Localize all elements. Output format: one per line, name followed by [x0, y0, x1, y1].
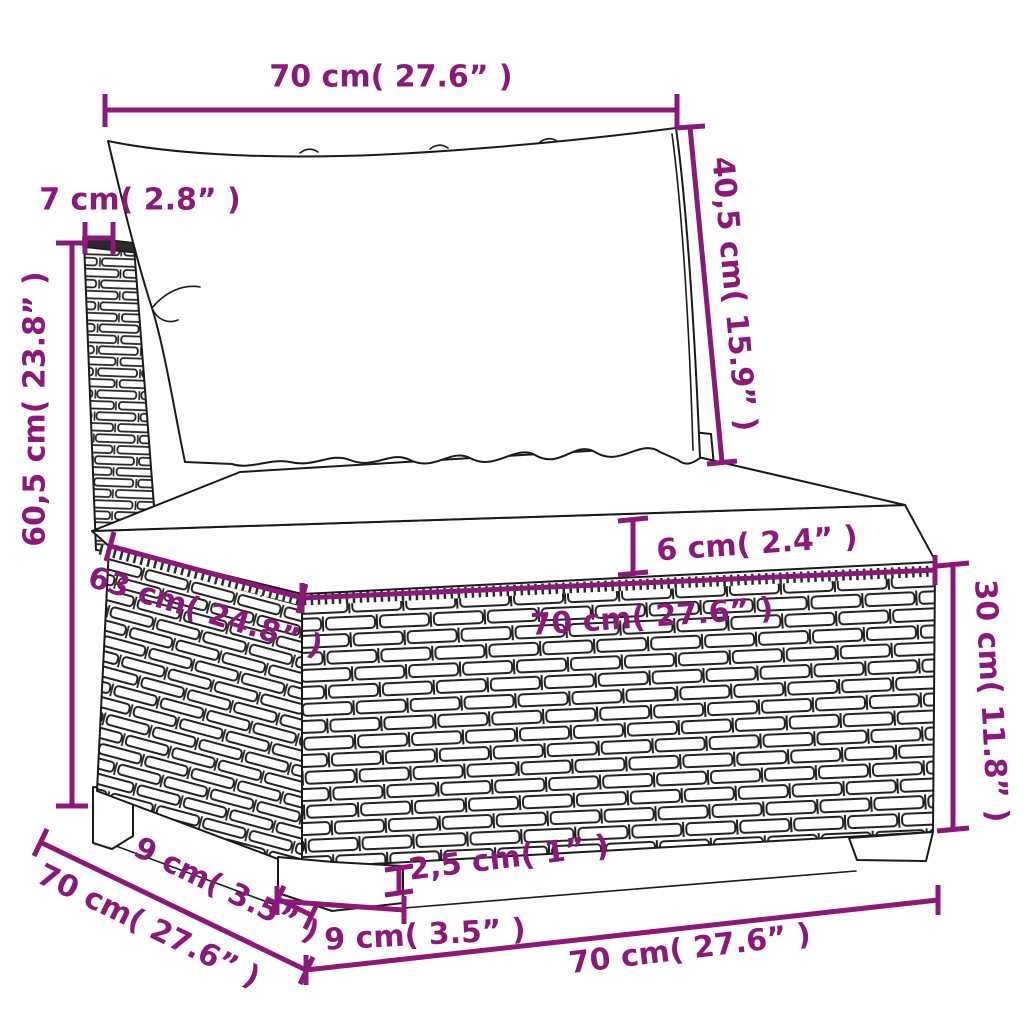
dim-total-height: 60,5 cm( 23.8” ) — [18, 243, 89, 806]
dim-label: 70 cm( 27.6” ) — [269, 60, 512, 95]
diagram-canvas: 70 cm( 27.6” ) 7 cm( 2.8” ) 40,5 cm( 15.… — [0, 0, 1024, 1024]
product-dimension-diagram: 70 cm( 27.6” ) 7 cm( 2.8” ) 40,5 cm( 15.… — [0, 0, 1024, 1024]
dim-line — [105, 94, 677, 127]
dim-line — [56, 243, 88, 806]
dim-line — [937, 563, 969, 831]
sofa-line-art — [83, 128, 936, 911]
back-cushion — [108, 128, 700, 466]
dim-base-height: 30 cm( 11.8” ) — [937, 563, 1015, 831]
dim-top-width: 70 cm( 27.6” ) — [105, 60, 677, 128]
dim-label: 7 cm( 2.8” ) — [39, 183, 241, 218]
front-right-leg — [849, 832, 933, 861]
dim-label: 60,5 cm( 23.8” ) — [18, 271, 53, 547]
dim-label: 30 cm( 11.8” ) — [967, 579, 1015, 824]
